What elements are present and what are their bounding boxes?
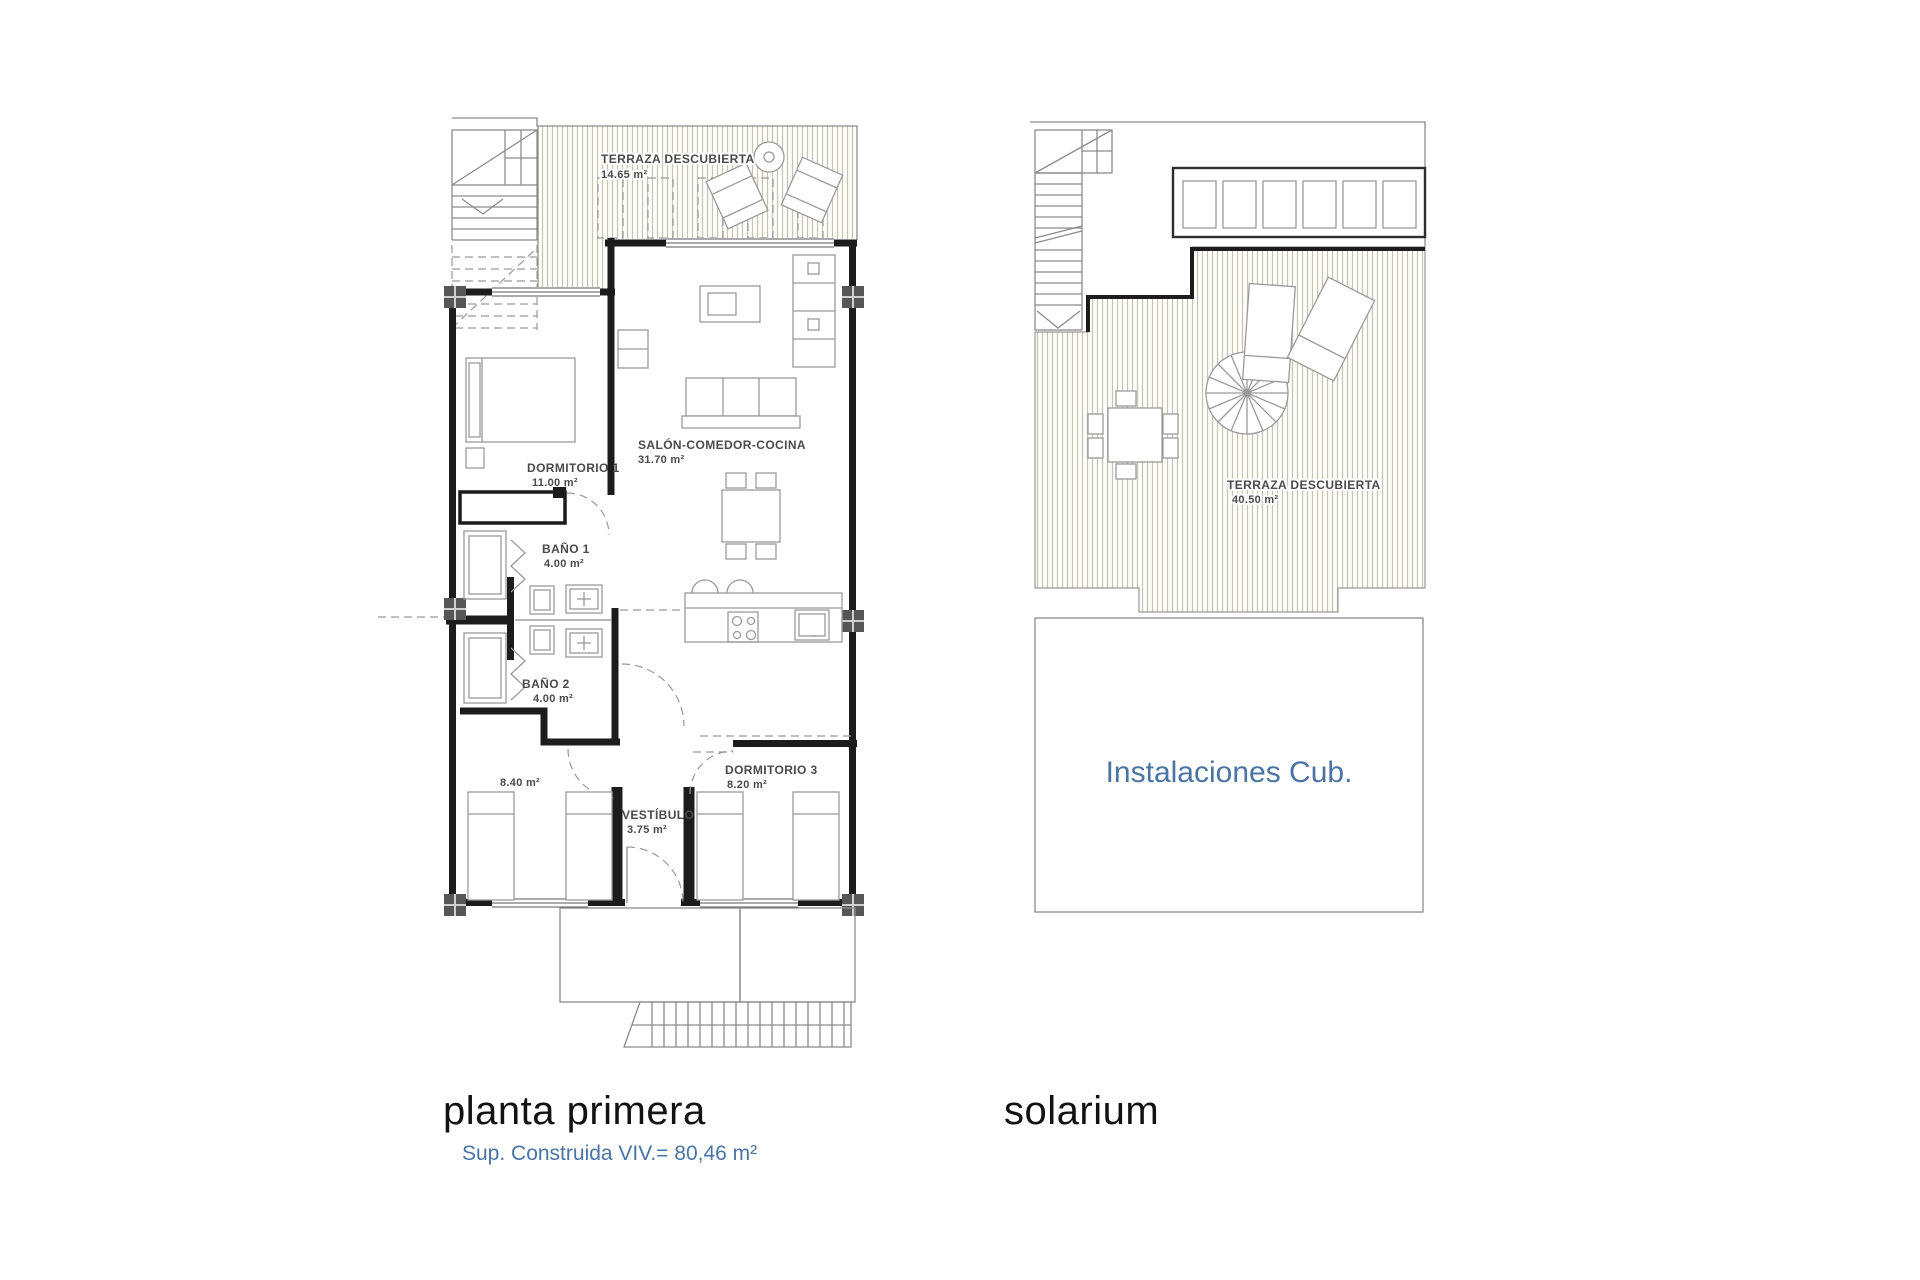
room-area-dormitorio2: 8.40 m² [500,777,540,789]
room-area-bano1: 4.00 m² [544,558,584,570]
room-area-terraza: 14.65 m² [601,169,647,181]
built-in-wardrobe [460,492,565,523]
sofa [682,378,800,428]
room-area-dormitorio1: 11.00 m² [532,477,578,489]
room-label-solarium-terraza: TERRAZA DESCUBIERTA [1227,478,1381,492]
pergola [1173,168,1425,237]
room-area-bano2: 4.00 m² [533,693,573,705]
dining-table [722,473,780,559]
tv-unit [700,286,760,322]
room-label-salon: SALÓN-COMEDOR-COCINA [638,437,806,452]
plan-solarium: TERRAZA DESCUBIERTA 40.50 m² Instalacion… [1030,122,1425,912]
room-area-solarium-terraza: 40.50 m² [1232,494,1278,506]
plan-title-planta-primera: planta primera [443,1089,706,1134]
room-label-dormitorio1: DORMITORIO 1 [527,461,620,475]
kitchen-counter [685,580,842,642]
plan-subtitle-built-area: Sup. Construida VIV.= 80,46 m² [462,1142,757,1166]
window [492,287,600,297]
hob [728,612,758,642]
bottom-patio [560,908,855,1047]
plan-title-solarium: solarium [1004,1089,1159,1134]
shower [464,633,506,703]
room-label-terraza: TERRAZA DESCUBIERTA [601,152,755,166]
bathroom2-fixtures [464,626,602,703]
salon-furniture [618,255,835,559]
room-label-vestibulo: VESTÍBULO [622,807,694,822]
floor-plan-sheet: TERRAZA DESCUBIERTA 14.65 m² SALÓN-COMED… [0,0,1920,1280]
floorplan-drawing: TERRAZA DESCUBIERTA 14.65 m² SALÓN-COMED… [0,0,1920,1280]
plan-planta-primera: TERRAZA DESCUBIERTA 14.65 m² SALÓN-COMED… [378,118,864,1047]
bed-double [466,358,575,468]
room-area-vestibulo: 3.75 m² [627,824,667,836]
room-label-instalaciones: Instalaciones Cub. [1106,756,1353,789]
room-label-bano2: BAÑO 2 [522,676,570,691]
room-area-dormitorio3: 8.20 m² [727,779,767,791]
room-area-salon: 31.70 m² [638,454,684,466]
room-label-dormitorio3: DORMITORIO 3 [725,763,818,777]
shower [464,531,506,599]
room-label-bano1: BAÑO 1 [542,541,590,556]
sliding-door [666,238,834,248]
